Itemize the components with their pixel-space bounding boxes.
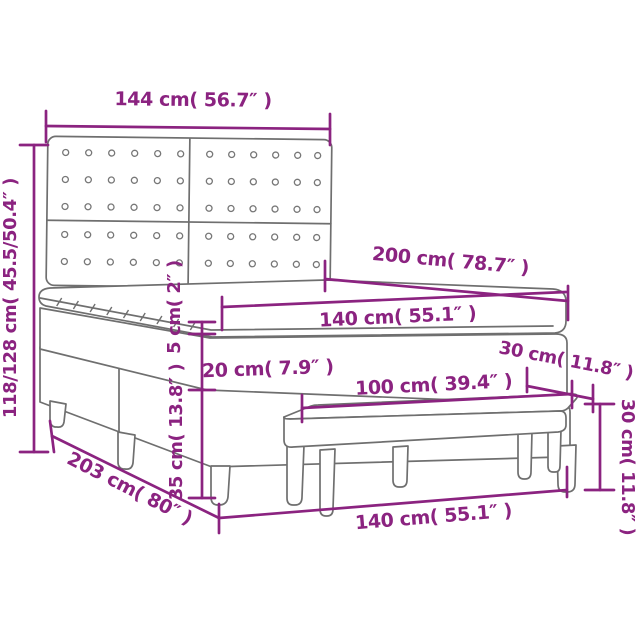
headboard-button bbox=[131, 177, 137, 183]
bench-leg-c bbox=[393, 446, 408, 487]
headboard-button bbox=[294, 206, 300, 212]
headboard-button bbox=[153, 260, 159, 266]
dim-topper-thickness-label: 5 cm( 2″ ) bbox=[164, 260, 185, 354]
headboard-button bbox=[313, 262, 319, 268]
headboard-button bbox=[271, 261, 277, 267]
headboard-button bbox=[206, 233, 212, 239]
headboard-button bbox=[84, 259, 90, 265]
bench-leg-a bbox=[287, 445, 304, 505]
bench-leg-b bbox=[320, 449, 335, 516]
headboard-button bbox=[177, 205, 183, 211]
bench-leg-d bbox=[518, 431, 532, 479]
headboard-button bbox=[314, 207, 320, 213]
bench-leg-e bbox=[548, 430, 561, 472]
headboard-button bbox=[154, 178, 160, 184]
headboard-button bbox=[178, 151, 184, 157]
headboard-button bbox=[250, 179, 256, 185]
headboard-button bbox=[227, 260, 233, 266]
headboard-button bbox=[314, 180, 320, 186]
headboard-button bbox=[130, 259, 136, 265]
dim-mattress-thickness-label: 20 cm( 7.9″ ) bbox=[202, 356, 334, 383]
dim-base-height-label: 35 cm( 13.8″ ) bbox=[166, 364, 187, 501]
headboard-button bbox=[85, 177, 91, 183]
headboard-button bbox=[250, 234, 256, 240]
headboard-button bbox=[62, 176, 68, 182]
headboard-button bbox=[62, 203, 68, 209]
dim-bench-height-label: 30 cm( 11.8″ ) bbox=[617, 399, 638, 536]
headboard-button bbox=[86, 150, 92, 156]
headboard-button bbox=[294, 179, 300, 185]
headboard-button bbox=[228, 205, 234, 211]
headboard-button bbox=[272, 206, 278, 212]
headboard-button bbox=[108, 232, 114, 238]
headboard-button bbox=[207, 151, 213, 157]
bed-drawing bbox=[39, 136, 577, 516]
bed-leg-mid-left bbox=[118, 432, 135, 469]
headboard-button bbox=[205, 260, 211, 266]
headboard-button bbox=[85, 204, 91, 210]
headboard-button bbox=[154, 233, 160, 239]
headboard-button bbox=[294, 234, 300, 240]
headboard-button bbox=[177, 233, 183, 239]
headboard-button bbox=[250, 206, 256, 212]
headboard-button bbox=[206, 178, 212, 184]
headboard-button bbox=[228, 178, 234, 184]
headboard-button bbox=[315, 153, 321, 159]
headboard-button bbox=[206, 205, 212, 211]
headboard-button bbox=[251, 152, 257, 158]
headboard-button bbox=[131, 232, 137, 238]
headboard-button bbox=[293, 261, 299, 267]
headboard-button bbox=[228, 233, 234, 239]
headboard-button bbox=[272, 179, 278, 185]
headboard-button bbox=[85, 232, 91, 238]
headboard-button bbox=[62, 231, 68, 237]
bed-leg-back-left bbox=[50, 401, 66, 427]
headboard-button bbox=[109, 150, 115, 156]
headboard-button bbox=[131, 204, 137, 210]
headboard-button bbox=[314, 235, 320, 241]
headboard-button bbox=[107, 259, 113, 265]
headboard-button bbox=[108, 204, 114, 210]
headboard-button bbox=[132, 150, 138, 156]
dim-bench-height: 30 cm( 11.8″ ) bbox=[585, 399, 638, 536]
bed-dimension-diagram: 144 cm( 56.7″ ) 118/128 cm( 45.5/50.4″ )… bbox=[0, 0, 640, 640]
headboard-button bbox=[295, 152, 301, 158]
headboard bbox=[46, 136, 332, 288]
headboard-button bbox=[61, 258, 67, 264]
dim-mattress-length-label: 200 cm( 78.7″ ) bbox=[371, 243, 530, 279]
headboard-button bbox=[63, 149, 69, 155]
headboard-button bbox=[249, 261, 255, 267]
headboard-button bbox=[177, 178, 183, 184]
headboard-button bbox=[155, 151, 161, 157]
headboard-button bbox=[229, 151, 235, 157]
headboard-button bbox=[272, 234, 278, 240]
dim-total-height-label: 118/128 cm( 45.5/50.4″ ) bbox=[0, 178, 21, 418]
headboard-button bbox=[108, 177, 114, 183]
headboard-button bbox=[154, 205, 160, 211]
headboard-button bbox=[273, 152, 279, 158]
dim-headboard-width-label: 144 cm( 56.7″ ) bbox=[114, 88, 272, 112]
